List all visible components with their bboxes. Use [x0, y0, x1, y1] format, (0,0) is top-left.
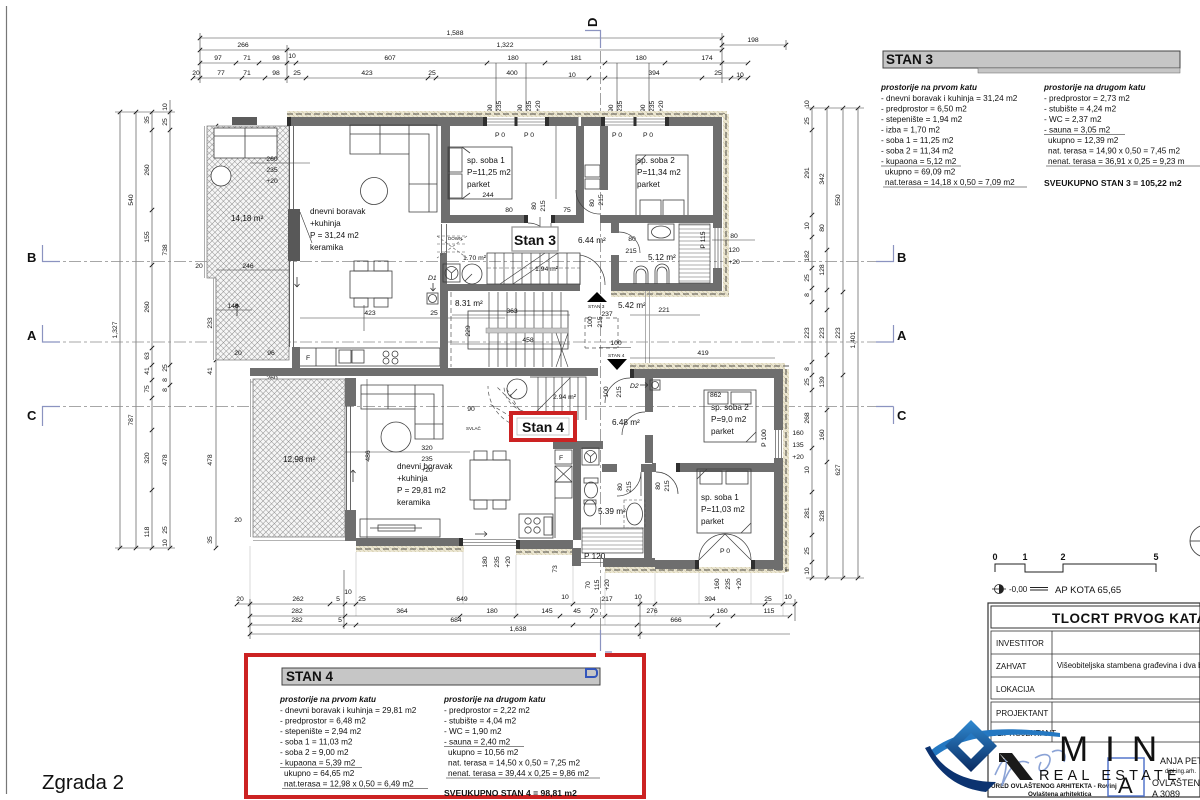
svg-text:160: 160	[714, 578, 721, 590]
svg-text:180: 180	[486, 608, 498, 615]
svg-text:419: 419	[697, 350, 709, 357]
svg-text:ukupno = 69,09 m2: ukupno = 69,09 m2	[885, 168, 956, 177]
svg-text:+20: +20	[535, 100, 542, 112]
svg-text:sp. soba 2: sp. soba 2	[637, 156, 675, 165]
svg-text:P 0: P 0	[524, 132, 534, 139]
svg-text:nat. terasa = 14,50 x 0,50 =: nat. terasa = 14,50 x 0,50 = 7,25 m2	[448, 759, 580, 768]
svg-text:291: 291	[804, 167, 811, 179]
svg-text:98: 98	[272, 70, 280, 77]
svg-text:128: 128	[819, 264, 826, 276]
svg-text:8: 8	[162, 388, 169, 392]
svg-text:10: 10	[162, 539, 169, 547]
svg-text:25: 25	[804, 378, 811, 386]
svg-text:550: 550	[835, 194, 842, 206]
svg-text:10: 10	[736, 72, 744, 79]
svg-text:P 120: P 120	[584, 552, 606, 561]
svg-text:98: 98	[272, 55, 280, 62]
svg-text:10: 10	[288, 53, 296, 60]
svg-text:- stubište = 4,04 m2: - stubište = 4,04 m2	[444, 717, 517, 726]
svg-text:1,588: 1,588	[446, 30, 463, 37]
svg-text:320: 320	[421, 445, 433, 452]
svg-text:180: 180	[482, 556, 489, 568]
svg-text:nat.terasa = 12,98 x 0,50 = 6: nat.terasa = 12,98 x 0,50 = 6,49 m2	[284, 780, 414, 789]
svg-text:LOKACIJA: LOKACIJA	[996, 685, 1035, 694]
svg-text:8: 8	[804, 293, 811, 297]
svg-text:2.94 m²: 2.94 m²	[553, 394, 577, 401]
svg-text:71: 71	[243, 55, 251, 62]
svg-text:2: 2	[1060, 552, 1065, 562]
svg-text:160: 160	[716, 608, 728, 615]
svg-text:5.39 m²: 5.39 m²	[598, 507, 626, 516]
svg-text:+20: +20	[266, 178, 278, 185]
svg-text:235: 235	[526, 100, 533, 112]
svg-text:P=9,0 m2: P=9,0 m2	[711, 415, 747, 424]
svg-text:35: 35	[144, 116, 151, 124]
svg-text:A: A	[27, 328, 37, 343]
svg-text:parket: parket	[637, 180, 660, 189]
svg-text:90: 90	[640, 104, 647, 112]
svg-text:20: 20	[195, 263, 203, 270]
svg-text:SVLAČ: SVLAČ	[466, 425, 482, 431]
svg-text:P = 29,81 m2: P = 29,81 m2	[397, 486, 446, 495]
svg-text:MIN: MIN	[1059, 730, 1174, 769]
svg-text:5.12 m²: 5.12 m²	[648, 253, 676, 262]
svg-text:STAN 3: STAN 3	[886, 52, 933, 67]
svg-text:- stepenište = 1,94 m2: - stepenište = 1,94 m2	[881, 115, 963, 124]
svg-text:25: 25	[162, 118, 169, 126]
svg-text:458: 458	[522, 337, 534, 344]
svg-text:118: 118	[144, 526, 151, 537]
svg-text:328: 328	[819, 510, 826, 522]
svg-text:STAN 4: STAN 4	[608, 353, 625, 359]
svg-text:10: 10	[804, 222, 811, 230]
svg-text:10: 10	[804, 100, 811, 108]
svg-text:115: 115	[764, 608, 775, 615]
svg-text:5.42 m²: 5.42 m²	[618, 301, 646, 310]
svg-text:DOWN: DOWN	[448, 236, 462, 241]
svg-text:parket: parket	[701, 517, 724, 526]
svg-text:D1: D1	[428, 275, 437, 282]
svg-text:120: 120	[728, 247, 740, 254]
svg-text:25: 25	[428, 70, 436, 77]
svg-text:B: B	[897, 250, 906, 265]
svg-text:12,98 m²: 12,98 m²	[283, 455, 316, 464]
svg-text:73: 73	[552, 565, 559, 573]
svg-text:6.44 m²: 6.44 m²	[578, 236, 606, 245]
svg-text:139: 139	[819, 376, 826, 388]
svg-text:282: 282	[291, 617, 303, 624]
svg-text:5: 5	[338, 617, 342, 624]
svg-text:- izba = 1,70 m2: - izba = 1,70 m2	[881, 126, 940, 135]
svg-text:235: 235	[266, 167, 278, 174]
svg-text:77: 77	[217, 70, 225, 77]
svg-text:235: 235	[617, 100, 624, 112]
svg-text:25: 25	[804, 117, 811, 125]
svg-text:80: 80	[531, 202, 538, 210]
svg-text:- soba 2 = 9,00 m2: - soba 2 = 9,00 m2	[280, 748, 349, 757]
svg-text:8: 8	[804, 367, 811, 371]
svg-text:215: 215	[664, 480, 671, 492]
svg-text:223: 223	[819, 327, 826, 339]
svg-text:215: 215	[540, 200, 547, 212]
svg-text:14,18 m²: 14,18 m²	[231, 214, 264, 223]
svg-text:223: 223	[804, 327, 811, 339]
svg-text:787: 787	[128, 414, 135, 426]
svg-text:215: 215	[598, 194, 605, 206]
svg-text:-0,00: -0,00	[1009, 585, 1028, 594]
svg-text:174: 174	[701, 55, 713, 62]
svg-text:SVEUKUPNO STAN 4 = 98,81 m2: SVEUKUPNO STAN 4 = 98,81 m2	[444, 788, 577, 798]
svg-text:80: 80	[655, 482, 662, 490]
svg-text:AP KOTA 65,65: AP KOTA 65,65	[1055, 585, 1121, 596]
svg-text:1.94 m²: 1.94 m²	[535, 266, 559, 273]
svg-text:P 115: P 115	[700, 231, 707, 248]
svg-text:394: 394	[648, 70, 660, 77]
svg-text:- sauna = 2,40 m2: - sauna = 2,40 m2	[444, 738, 511, 747]
svg-text:268: 268	[804, 412, 811, 424]
svg-text:- sauna = 3,05 m2: - sauna = 3,05 m2	[1044, 126, 1111, 135]
svg-text:P 0: P 0	[495, 132, 505, 139]
svg-text:Višeobiteljska stambena građev: Višeobiteljska stambena građevina i dva …	[1057, 661, 1200, 670]
svg-text:STAN 4: STAN 4	[286, 669, 333, 684]
svg-text:prostorije na prvom katu: prostorije na prvom katu	[279, 695, 376, 704]
svg-text:nat. terasa = 14,90 x 0,50 =: nat. terasa = 14,90 x 0,50 = 7,45 m2	[1048, 147, 1180, 156]
svg-text:235: 235	[494, 556, 501, 568]
svg-text:- WC = 2,37 m2: - WC = 2,37 m2	[1044, 115, 1102, 124]
svg-text:478: 478	[162, 454, 169, 466]
svg-text:parket: parket	[711, 427, 734, 436]
svg-text:25: 25	[162, 526, 169, 534]
svg-text:160: 160	[819, 429, 826, 441]
svg-text:P = 31,24 m2: P = 31,24 m2	[310, 231, 359, 240]
svg-text:STAN 3: STAN 3	[588, 304, 605, 310]
svg-text:1.70 m²: 1.70 m²	[463, 255, 487, 262]
svg-text:A: A	[897, 328, 907, 343]
svg-text:25: 25	[293, 70, 301, 77]
svg-text:96: 96	[267, 350, 275, 357]
svg-text:684: 684	[450, 617, 462, 624]
svg-text:90: 90	[487, 104, 494, 112]
svg-text:221: 221	[658, 307, 670, 314]
svg-text:363: 363	[506, 308, 518, 315]
svg-text:A 3089: A 3089	[1152, 789, 1180, 799]
svg-text:P 0: P 0	[720, 548, 730, 555]
svg-text:- kupaona = 5,39 m2: - kupaona = 5,39 m2	[280, 759, 356, 768]
svg-text:233: 233	[207, 317, 214, 329]
svg-text:215: 215	[616, 386, 623, 398]
svg-text:282: 282	[291, 608, 303, 615]
svg-text:+20: +20	[604, 579, 611, 591]
svg-text:215: 215	[626, 481, 633, 493]
svg-text:10: 10	[561, 594, 569, 601]
svg-text:223: 223	[835, 327, 842, 339]
svg-text:D: D	[585, 18, 600, 27]
svg-text:dnevni boravak: dnevni boravak	[310, 207, 366, 216]
svg-text:276: 276	[646, 608, 658, 615]
svg-text:423: 423	[364, 310, 376, 317]
svg-text:10: 10	[634, 594, 642, 601]
svg-text:10: 10	[344, 589, 352, 596]
svg-text:5: 5	[336, 596, 340, 603]
svg-text:- WC = 1,90 m2: - WC = 1,90 m2	[444, 727, 502, 736]
svg-text:217: 217	[601, 596, 613, 603]
svg-text:keramika: keramika	[310, 243, 344, 252]
svg-text:prostorije na prvom katu: prostorije na prvom katu	[880, 83, 977, 92]
svg-text:parket: parket	[467, 180, 490, 189]
svg-text:P 0: P 0	[612, 132, 622, 139]
svg-text:nenat. terasa = 36,91 x 0,25: nenat. terasa = 36,91 x 0,25 = 9,23 m	[1048, 157, 1185, 166]
svg-text:155: 155	[144, 231, 151, 243]
svg-text:ZAHVAT: ZAHVAT	[996, 662, 1026, 671]
svg-text:- predprostor = 2,22 m2: - predprostor = 2,22 m2	[444, 706, 530, 715]
svg-text:REAL ESTATE: REAL ESTATE	[1039, 768, 1181, 784]
svg-text:20: 20	[236, 596, 244, 603]
svg-text:B: B	[27, 250, 36, 265]
svg-text:F: F	[306, 355, 310, 362]
svg-text:281: 281	[804, 507, 811, 519]
svg-text:180: 180	[507, 55, 519, 62]
svg-text:394: 394	[704, 596, 716, 603]
svg-text:C: C	[897, 408, 907, 423]
svg-text:P 0: P 0	[643, 132, 653, 139]
svg-text:10: 10	[804, 567, 811, 575]
svg-text:260: 260	[144, 301, 151, 313]
svg-text:- stepenište = 2,94 m2: - stepenište = 2,94 m2	[280, 727, 362, 736]
svg-text:400: 400	[506, 70, 518, 77]
svg-text:41: 41	[207, 367, 214, 375]
svg-text:97: 97	[214, 55, 222, 62]
svg-text:8: 8	[162, 378, 169, 382]
svg-text:+20: +20	[728, 259, 740, 266]
svg-text:- kupaona = 5,12 m2: - kupaona = 5,12 m2	[881, 157, 957, 166]
svg-text:nenat. terasa = 39,44 x 0,25: nenat. terasa = 39,44 x 0,25 = 9,86 m2	[448, 769, 590, 778]
svg-text:20: 20	[234, 517, 242, 524]
svg-text:237: 237	[601, 311, 613, 318]
svg-text:80: 80	[617, 483, 624, 491]
svg-text:1,401: 1,401	[850, 331, 857, 348]
svg-text:20: 20	[192, 70, 200, 77]
svg-text:25: 25	[804, 274, 811, 282]
svg-text:prostorije na drugom katu: prostorije na drugom katu	[1043, 83, 1145, 92]
svg-text:229: 229	[465, 325, 472, 337]
svg-text:- soba 1 = 11,25 m2: - soba 1 = 11,25 m2	[881, 136, 954, 145]
svg-text:PROJEKTANT: PROJEKTANT	[996, 709, 1048, 718]
svg-text:70: 70	[590, 608, 598, 615]
svg-text:35: 35	[207, 536, 214, 544]
svg-text:181: 181	[570, 55, 582, 62]
svg-text:80: 80	[589, 199, 596, 207]
svg-text:666: 666	[670, 617, 682, 624]
svg-text:627: 627	[835, 464, 842, 476]
svg-text:80: 80	[819, 224, 826, 232]
svg-text:198: 198	[747, 37, 759, 44]
svg-text:prostorije na drugom katu: prostorije na drugom katu	[443, 695, 545, 704]
svg-text:ukupno = 10,56 m2: ukupno = 10,56 m2	[448, 748, 519, 757]
svg-text:8.31 m²: 8.31 m²	[455, 299, 483, 308]
svg-text:80: 80	[628, 236, 636, 243]
svg-text:262: 262	[292, 596, 304, 603]
svg-text:- predprostor = 6,50 m2: - predprostor = 6,50 m2	[881, 105, 967, 114]
svg-text:- predprostor = 6,48 m2: - predprostor = 6,48 m2	[280, 717, 366, 726]
svg-text:540: 540	[128, 194, 135, 206]
svg-text:ukupno = 64,65 m2: ukupno = 64,65 m2	[284, 769, 355, 778]
svg-text:20: 20	[234, 350, 242, 357]
svg-text:90: 90	[608, 104, 615, 112]
svg-text:342: 342	[819, 173, 826, 185]
svg-text:423: 423	[361, 70, 373, 77]
svg-text:keramika: keramika	[397, 498, 431, 507]
svg-text:235: 235	[725, 578, 732, 590]
svg-text:80: 80	[505, 207, 513, 214]
svg-text:63: 63	[144, 352, 151, 360]
svg-text:862: 862	[710, 392, 722, 399]
svg-text:- dnevni boravak i kuhinja = 2: - dnevni boravak i kuhinja = 29,81 m2	[280, 706, 417, 715]
svg-text:TLOCRT PRVOG KATA: TLOCRT PRVOG KATA	[1052, 611, 1200, 626]
svg-text:- predprostor = 2,73 m2: - predprostor = 2,73 m2	[1044, 94, 1130, 103]
svg-text:478: 478	[207, 454, 214, 466]
svg-text:215: 215	[625, 248, 637, 255]
svg-text:25: 25	[358, 596, 366, 603]
svg-text:- stubište = 4,24 m2: - stubište = 4,24 m2	[1044, 105, 1117, 114]
svg-text:244: 244	[482, 192, 494, 199]
svg-text:P=11,03 m2: P=11,03 m2	[701, 505, 745, 514]
svg-text:738: 738	[162, 244, 169, 256]
svg-text:+kuhinja: +kuhinja	[397, 474, 428, 483]
svg-text:10: 10	[568, 72, 576, 79]
svg-text:- soba 1 = 11,03 m2: - soba 1 = 11,03 m2	[280, 738, 353, 747]
svg-text:90: 90	[467, 406, 475, 413]
svg-text:Zgrada 2: Zgrada 2	[42, 771, 124, 794]
svg-text:320: 320	[144, 452, 151, 464]
svg-text:115: 115	[594, 579, 601, 590]
svg-text:75: 75	[144, 385, 151, 393]
svg-text:Ovlaštena arhitektica: Ovlaštena arhitektica	[1028, 791, 1092, 798]
svg-text:182: 182	[804, 250, 811, 262]
svg-text:sp. soba 1: sp. soba 1	[467, 156, 505, 165]
svg-text:F: F	[559, 455, 563, 462]
svg-text:25: 25	[714, 70, 722, 77]
svg-text:10: 10	[784, 594, 792, 601]
svg-text:180: 180	[635, 55, 647, 62]
svg-text:+20: +20	[658, 100, 665, 112]
svg-text:sp. soba 2: sp. soba 2	[711, 403, 749, 412]
svg-text:75: 75	[563, 207, 571, 214]
svg-text:10: 10	[162, 103, 169, 111]
svg-text:100: 100	[603, 386, 610, 398]
svg-text:607: 607	[384, 55, 396, 62]
svg-text:25: 25	[162, 364, 169, 372]
svg-text:1,327: 1,327	[112, 321, 119, 338]
svg-text:6.48 m²: 6.48 m²	[612, 418, 640, 427]
svg-text:70: 70	[585, 581, 592, 589]
svg-text:P=11,25 m2: P=11,25 m2	[467, 168, 511, 177]
svg-text:P=11,34 m2: P=11,34 m2	[637, 168, 681, 177]
svg-text:nat.terasa = 14,18 x 0,50 = 7: nat.terasa = 14,18 x 0,50 = 7,09 m2	[885, 178, 1015, 187]
svg-text:Stan 3: Stan 3	[514, 232, 556, 248]
svg-text:25: 25	[764, 596, 772, 603]
svg-text:266: 266	[237, 42, 249, 49]
svg-text:45: 45	[573, 608, 581, 615]
svg-text:Stan 4: Stan 4	[522, 419, 564, 435]
svg-text:0: 0	[992, 552, 997, 562]
svg-text:+20: +20	[736, 578, 743, 590]
svg-text:D2: D2	[630, 383, 639, 390]
svg-text:145: 145	[541, 608, 553, 615]
svg-text:71: 71	[243, 70, 251, 77]
svg-text:235: 235	[649, 100, 656, 112]
svg-text:+kuhinja: +kuhinja	[310, 219, 341, 228]
svg-text:sp. soba 1: sp. soba 1	[701, 493, 739, 502]
svg-text:649: 649	[456, 596, 468, 603]
svg-text:SVEUKUPNO STAN 3 = 105,22 m2: SVEUKUPNO STAN 3 = 105,22 m2	[1044, 178, 1182, 188]
svg-text:5: 5	[1153, 552, 1158, 562]
svg-text:10: 10	[804, 466, 811, 474]
svg-text:- dnevni boravak i kuhinja = 3: - dnevni boravak i kuhinja = 31,24 m2	[881, 94, 1018, 103]
svg-text:C: C	[27, 408, 37, 423]
svg-text:- soba 2 = 11,34 m2: - soba 2 = 11,34 m2	[881, 147, 954, 156]
svg-text:INVESTITOR: INVESTITOR	[996, 639, 1044, 648]
svg-text:80: 80	[730, 233, 738, 240]
svg-text:260: 260	[266, 156, 278, 163]
svg-text:+20: +20	[792, 454, 804, 461]
svg-text:486: 486	[365, 450, 372, 462]
svg-text:260: 260	[144, 164, 151, 176]
svg-text:246: 246	[242, 263, 254, 270]
svg-text:+20: +20	[505, 556, 512, 568]
svg-text:1,322: 1,322	[496, 42, 513, 49]
svg-text:148: 148	[227, 303, 239, 310]
svg-text:1,638: 1,638	[509, 626, 526, 633]
svg-text:100: 100	[610, 340, 622, 347]
svg-text:ukupno = 12,39 m2: ukupno = 12,39 m2	[1048, 136, 1119, 145]
svg-text:90: 90	[517, 104, 524, 112]
svg-text:135: 135	[792, 442, 804, 449]
svg-text:41: 41	[144, 367, 151, 375]
svg-text:P 100: P 100	[761, 429, 768, 447]
svg-text:dnevni boravak: dnevni boravak	[397, 462, 453, 471]
svg-text:160: 160	[792, 430, 804, 437]
svg-text:1: 1	[1022, 552, 1027, 562]
svg-text:25: 25	[804, 547, 811, 555]
svg-text:235: 235	[496, 100, 503, 112]
svg-text:364: 364	[396, 608, 408, 615]
svg-text:25: 25	[430, 310, 438, 317]
